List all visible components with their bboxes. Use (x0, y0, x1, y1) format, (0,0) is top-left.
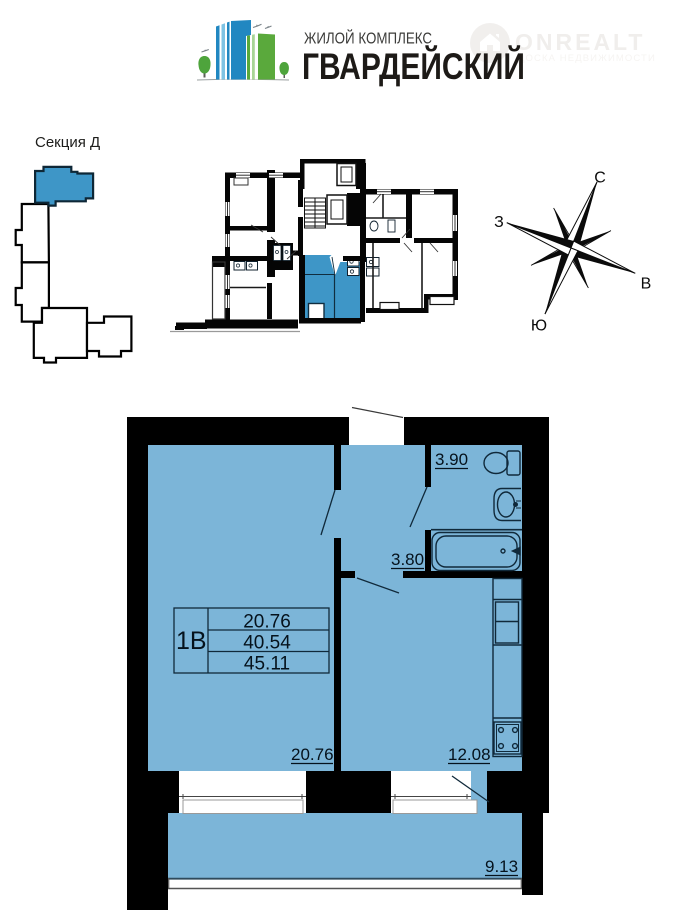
svg-text:В: В (641, 276, 652, 293)
svg-text:ЖИЛОЙ КОМПЛЕКС: ЖИЛОЙ КОМПЛЕКС (304, 30, 432, 48)
svg-text:З: З (494, 214, 504, 231)
svg-text:ГВАРДЕЙСКИЙ: ГВАРДЕЙСКИЙ (302, 45, 525, 87)
svg-text:9.13: 9.13 (485, 857, 518, 876)
svg-text:3.80: 3.80 (391, 550, 424, 569)
svg-text:1В: 1В (176, 627, 207, 655)
svg-text:ONREALT: ONREALT (515, 29, 645, 55)
svg-text:20.76: 20.76 (243, 612, 291, 633)
svg-text:45.11: 45.11 (244, 654, 290, 675)
svg-text:40.54: 40.54 (243, 633, 291, 654)
svg-text:20.76: 20.76 (291, 745, 334, 764)
svg-text:Ю: Ю (531, 318, 547, 335)
svg-text:Секция Д: Секция Д (35, 134, 100, 151)
svg-text:3.90: 3.90 (435, 450, 468, 469)
svg-text:С: С (594, 170, 606, 187)
svg-text:12.08: 12.08 (448, 745, 491, 764)
svg-text:ДОСКА НЕДВИЖИМОСТИ: ДОСКА НЕДВИЖИМОСТИ (518, 53, 656, 64)
